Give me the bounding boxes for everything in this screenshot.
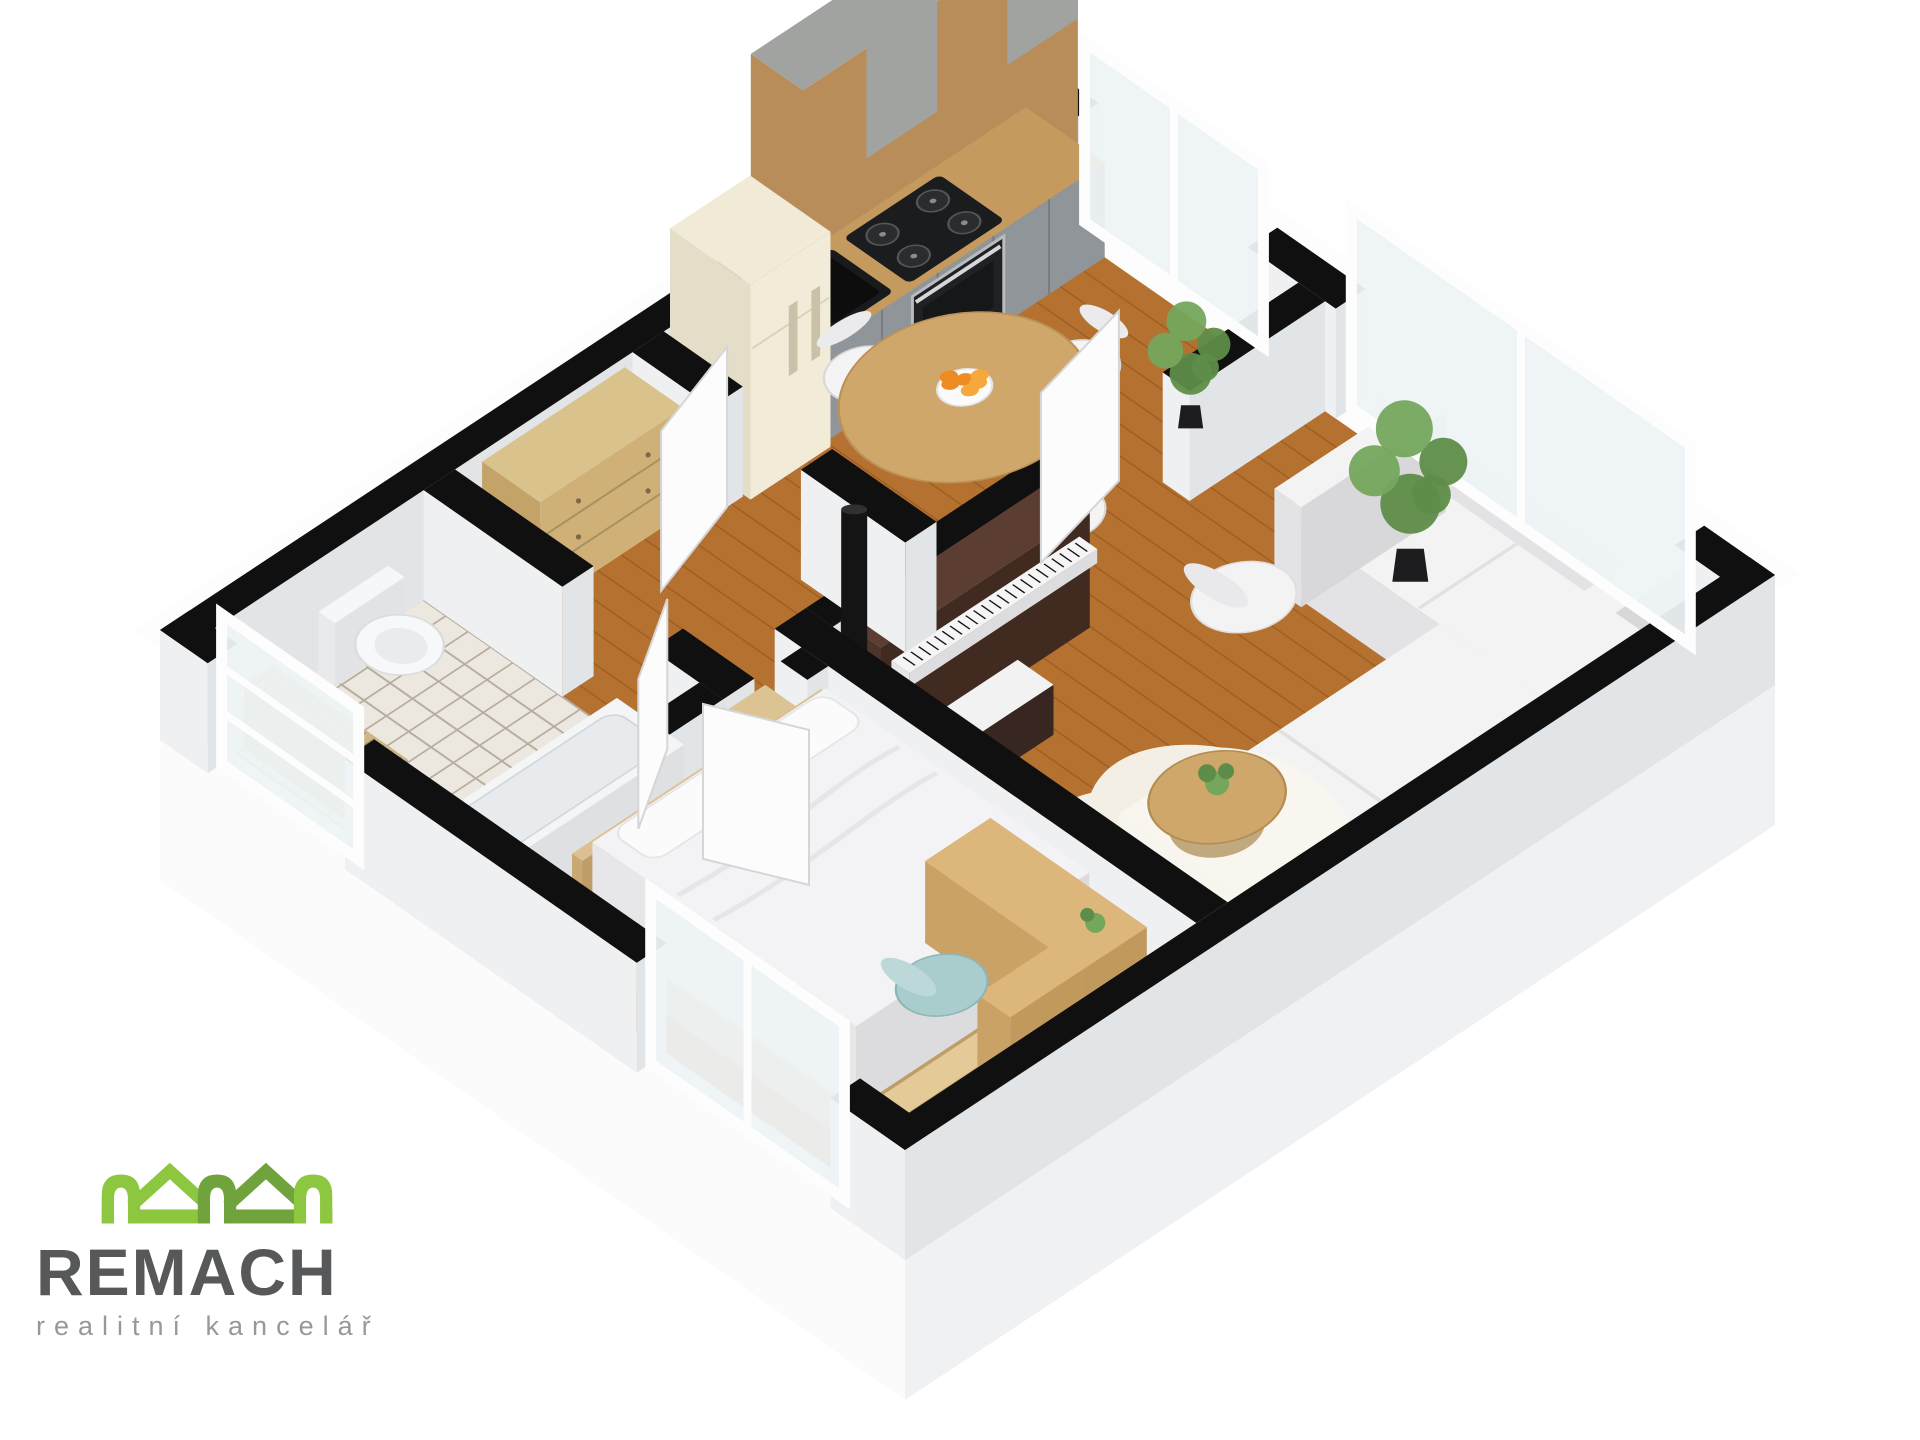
- floorplan-page: REMACH realitní kancelář: [0, 0, 1920, 1440]
- logo-houses-icon: [86, 1146, 348, 1238]
- brand-tagline: realitní kancelář: [36, 1311, 396, 1342]
- bedroom-door: [703, 704, 809, 885]
- brand-name: REMACH: [36, 1238, 396, 1307]
- remach-logo: REMACH realitní kancelář: [36, 1146, 396, 1342]
